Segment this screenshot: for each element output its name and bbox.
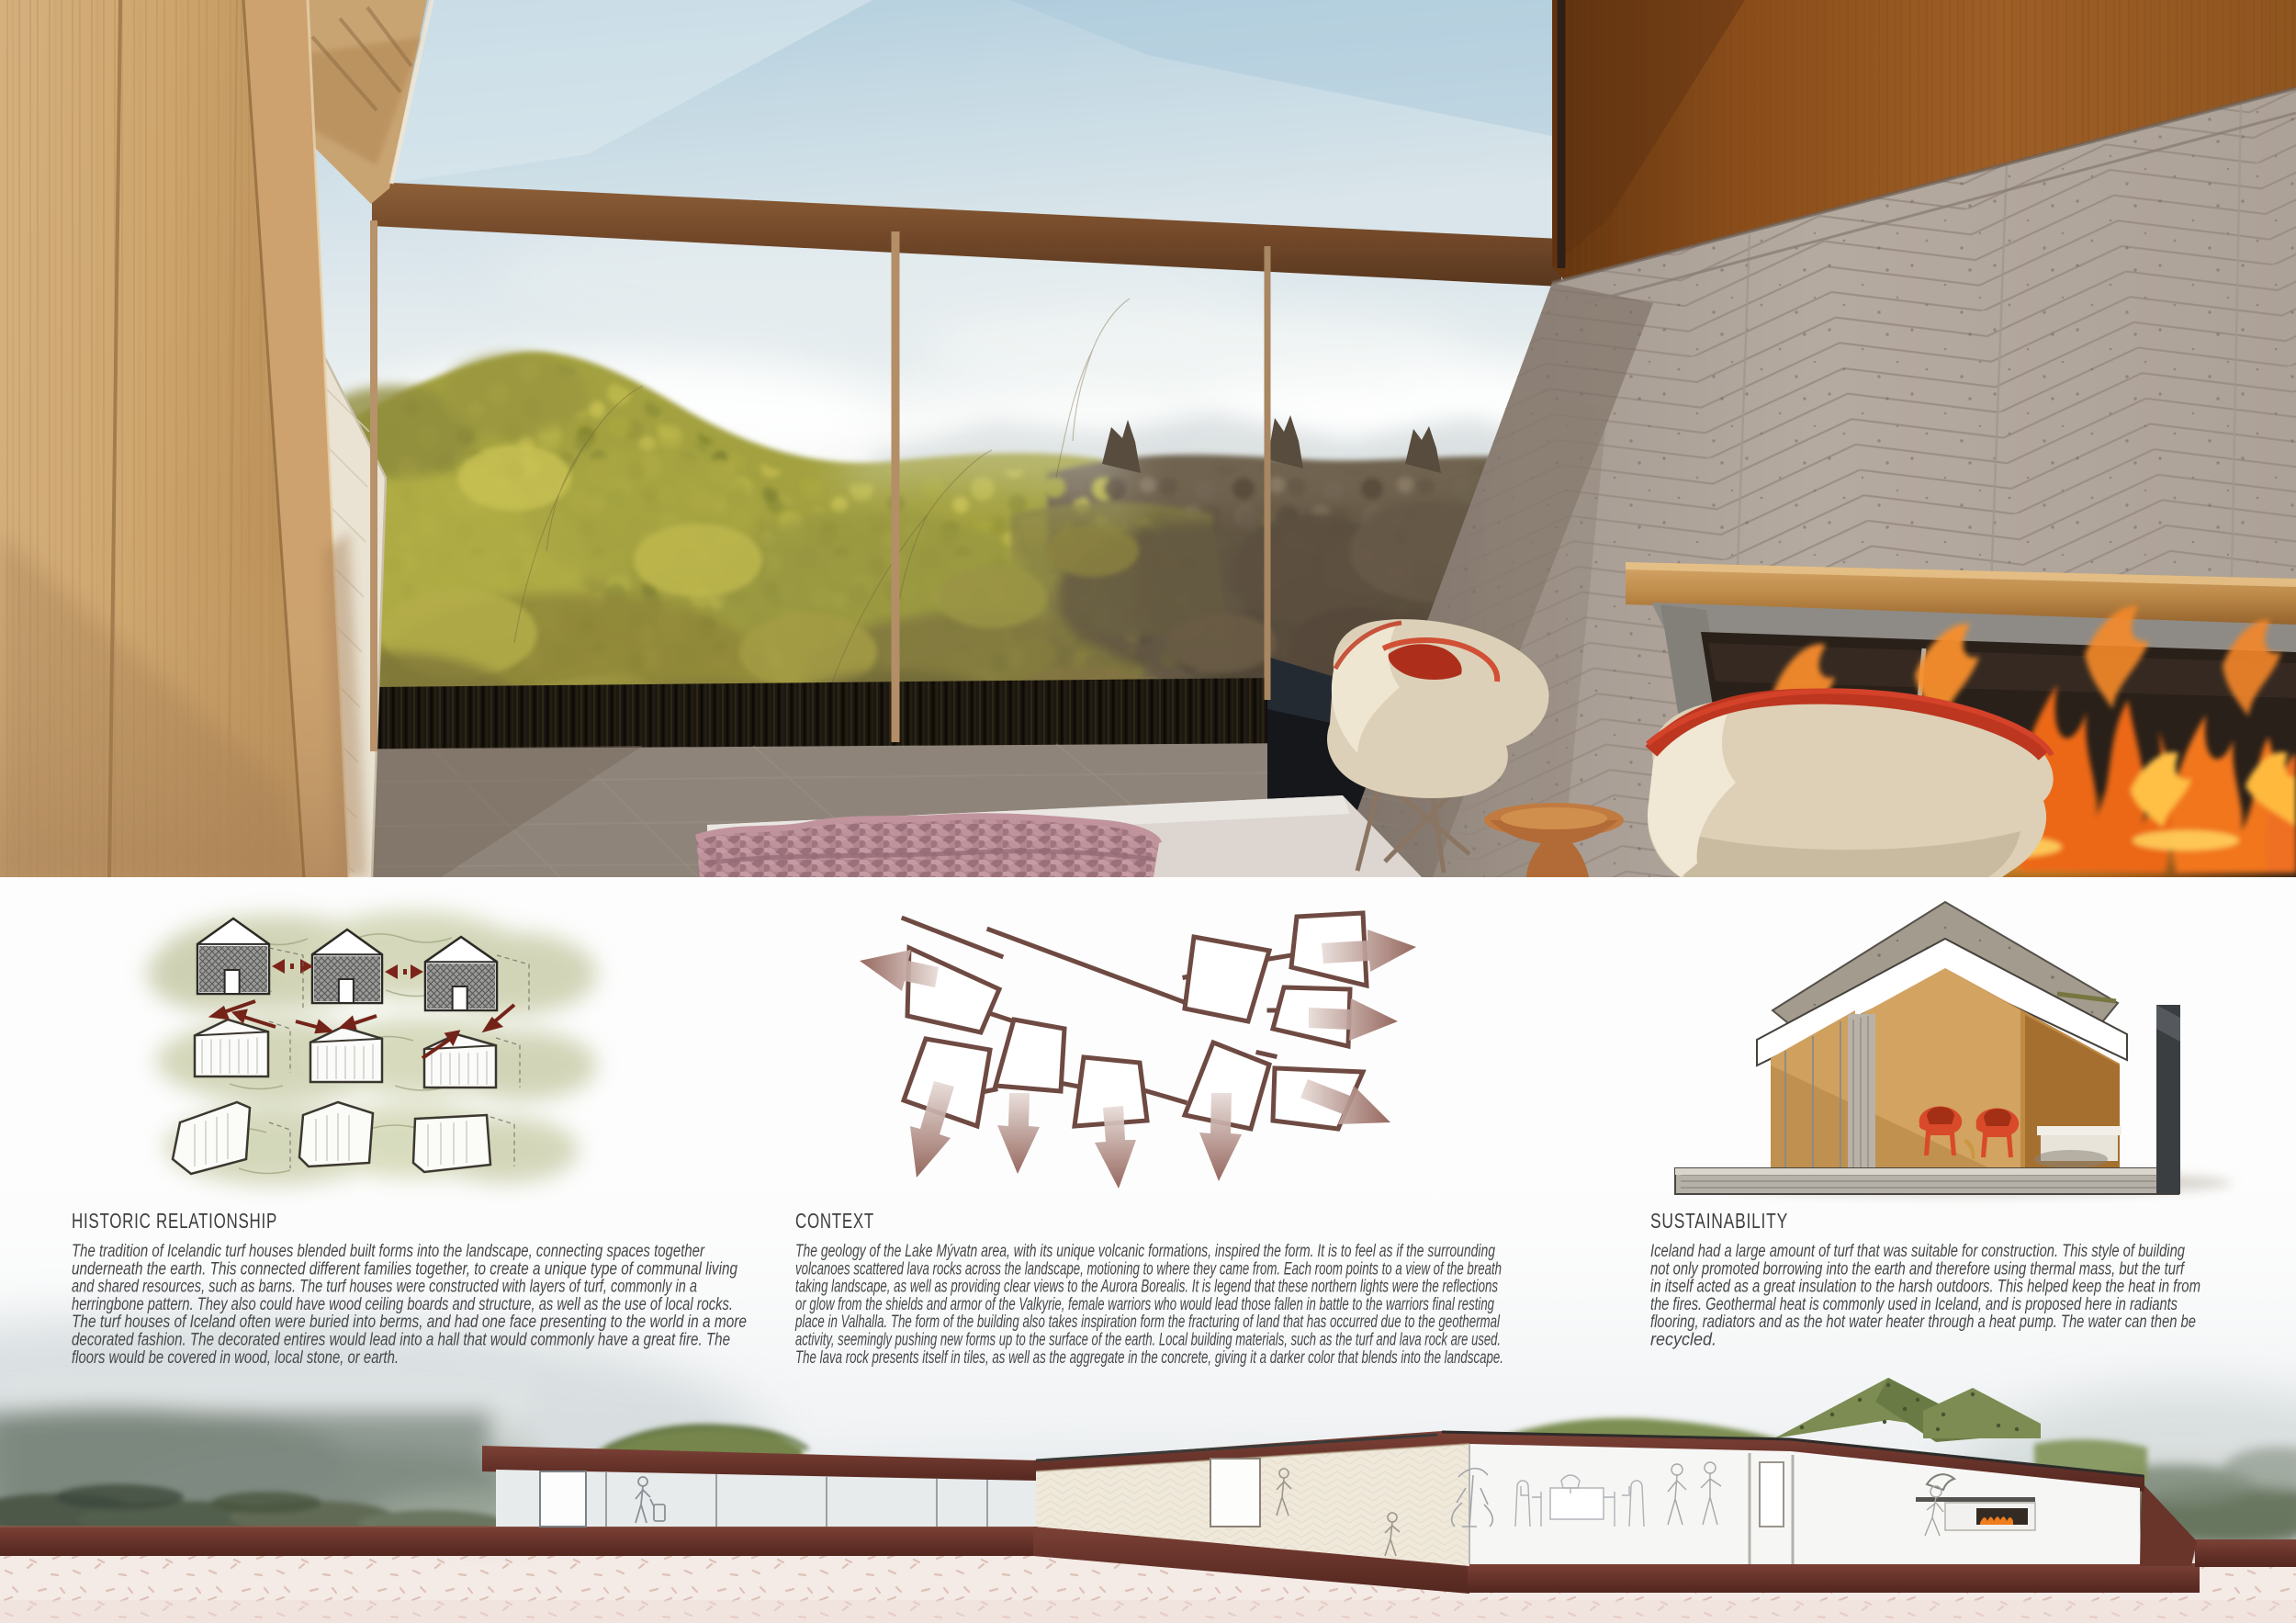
svg-text:recycled.: recycled. [1650, 1331, 1716, 1350]
svg-text:CONTEXT: CONTEXT [795, 1209, 874, 1233]
svg-text:flooring, radiators and as the: flooring, radiators and as the hot water… [1650, 1313, 2196, 1332]
svg-text:in itself acted as a great ins: in itself acted as a great insulation to… [1650, 1278, 2200, 1297]
svg-text:The lava rock presents itself: The lava rock presents itself in tiles, … [795, 1348, 1503, 1368]
svg-text:floors would be covered in woo: floors would be covered in wood, local s… [72, 1348, 399, 1368]
svg-text:activity, seemingly pushing ne: activity, seemingly pushing new forms up… [795, 1331, 1501, 1350]
svg-text:SUSTAINABILITY: SUSTAINABILITY [1650, 1209, 1788, 1233]
svg-text:HISTORIC RELATIONSHIP: HISTORIC RELATIONSHIP [72, 1209, 277, 1233]
svg-text:decorated fashion. The decorat: decorated fashion. The decorated entires… [72, 1331, 730, 1350]
svg-text:and shared resources, such as: and shared resources, such as barns. The… [72, 1278, 697, 1297]
svg-text:The turf houses of Iceland oft: The turf houses of Iceland often were bu… [72, 1313, 747, 1332]
svg-text:volcanoes scattered lava rocks: volcanoes scattered lava rocks across th… [795, 1259, 1502, 1279]
svg-text:taking landscape, as well as p: taking landscape, as well as providing c… [795, 1278, 1498, 1297]
svg-text:Iceland had a large amount of: Iceland had a large amount of turf that … [1650, 1242, 2185, 1261]
svg-text:The geology of the Lake Mývatn: The geology of the Lake Mývatn area, wit… [795, 1242, 1495, 1261]
svg-text:or glow from the shields and a: or glow from the shields and armor of th… [795, 1295, 1494, 1314]
svg-text:the fires. Geothermal heat is: the fires. Geothermal heat is commonly u… [1650, 1295, 2178, 1314]
svg-text:underneath the earth. This con: underneath the earth. This connected dif… [72, 1259, 737, 1279]
svg-text:not only promoted borrowing in: not only promoted borrowing into the ear… [1650, 1259, 2185, 1279]
svg-text:The tradition of Icelandic tur: The tradition of Icelandic turf houses b… [72, 1242, 705, 1261]
svg-text:place in Valhalla. The form of: place in Valhalla. The form of the build… [794, 1313, 1500, 1332]
svg-text:herringbone pattern. They also: herringbone pattern. They also could hav… [72, 1295, 733, 1314]
